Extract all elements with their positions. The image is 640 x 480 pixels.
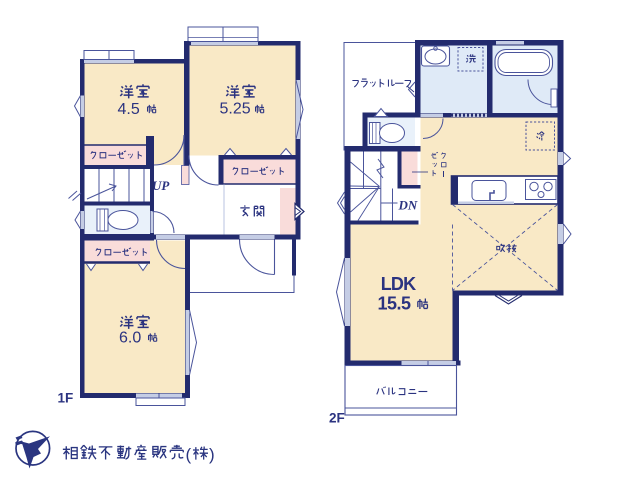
svg-text:2F: 2F [329, 411, 345, 426]
svg-text:DN: DN [398, 198, 418, 213]
svg-text:15.5: 15.5 [378, 294, 412, 314]
svg-text:LDK: LDK [381, 274, 416, 294]
svg-text:1F: 1F [58, 391, 74, 406]
svg-text:UP: UP [152, 178, 170, 193]
svg-text:): ) [209, 445, 215, 464]
svg-text:(: ( [186, 445, 192, 464]
svg-text:5.25: 5.25 [220, 101, 251, 118]
svg-text:4.5: 4.5 [118, 101, 140, 118]
svg-text:6.0: 6.0 [119, 330, 141, 347]
